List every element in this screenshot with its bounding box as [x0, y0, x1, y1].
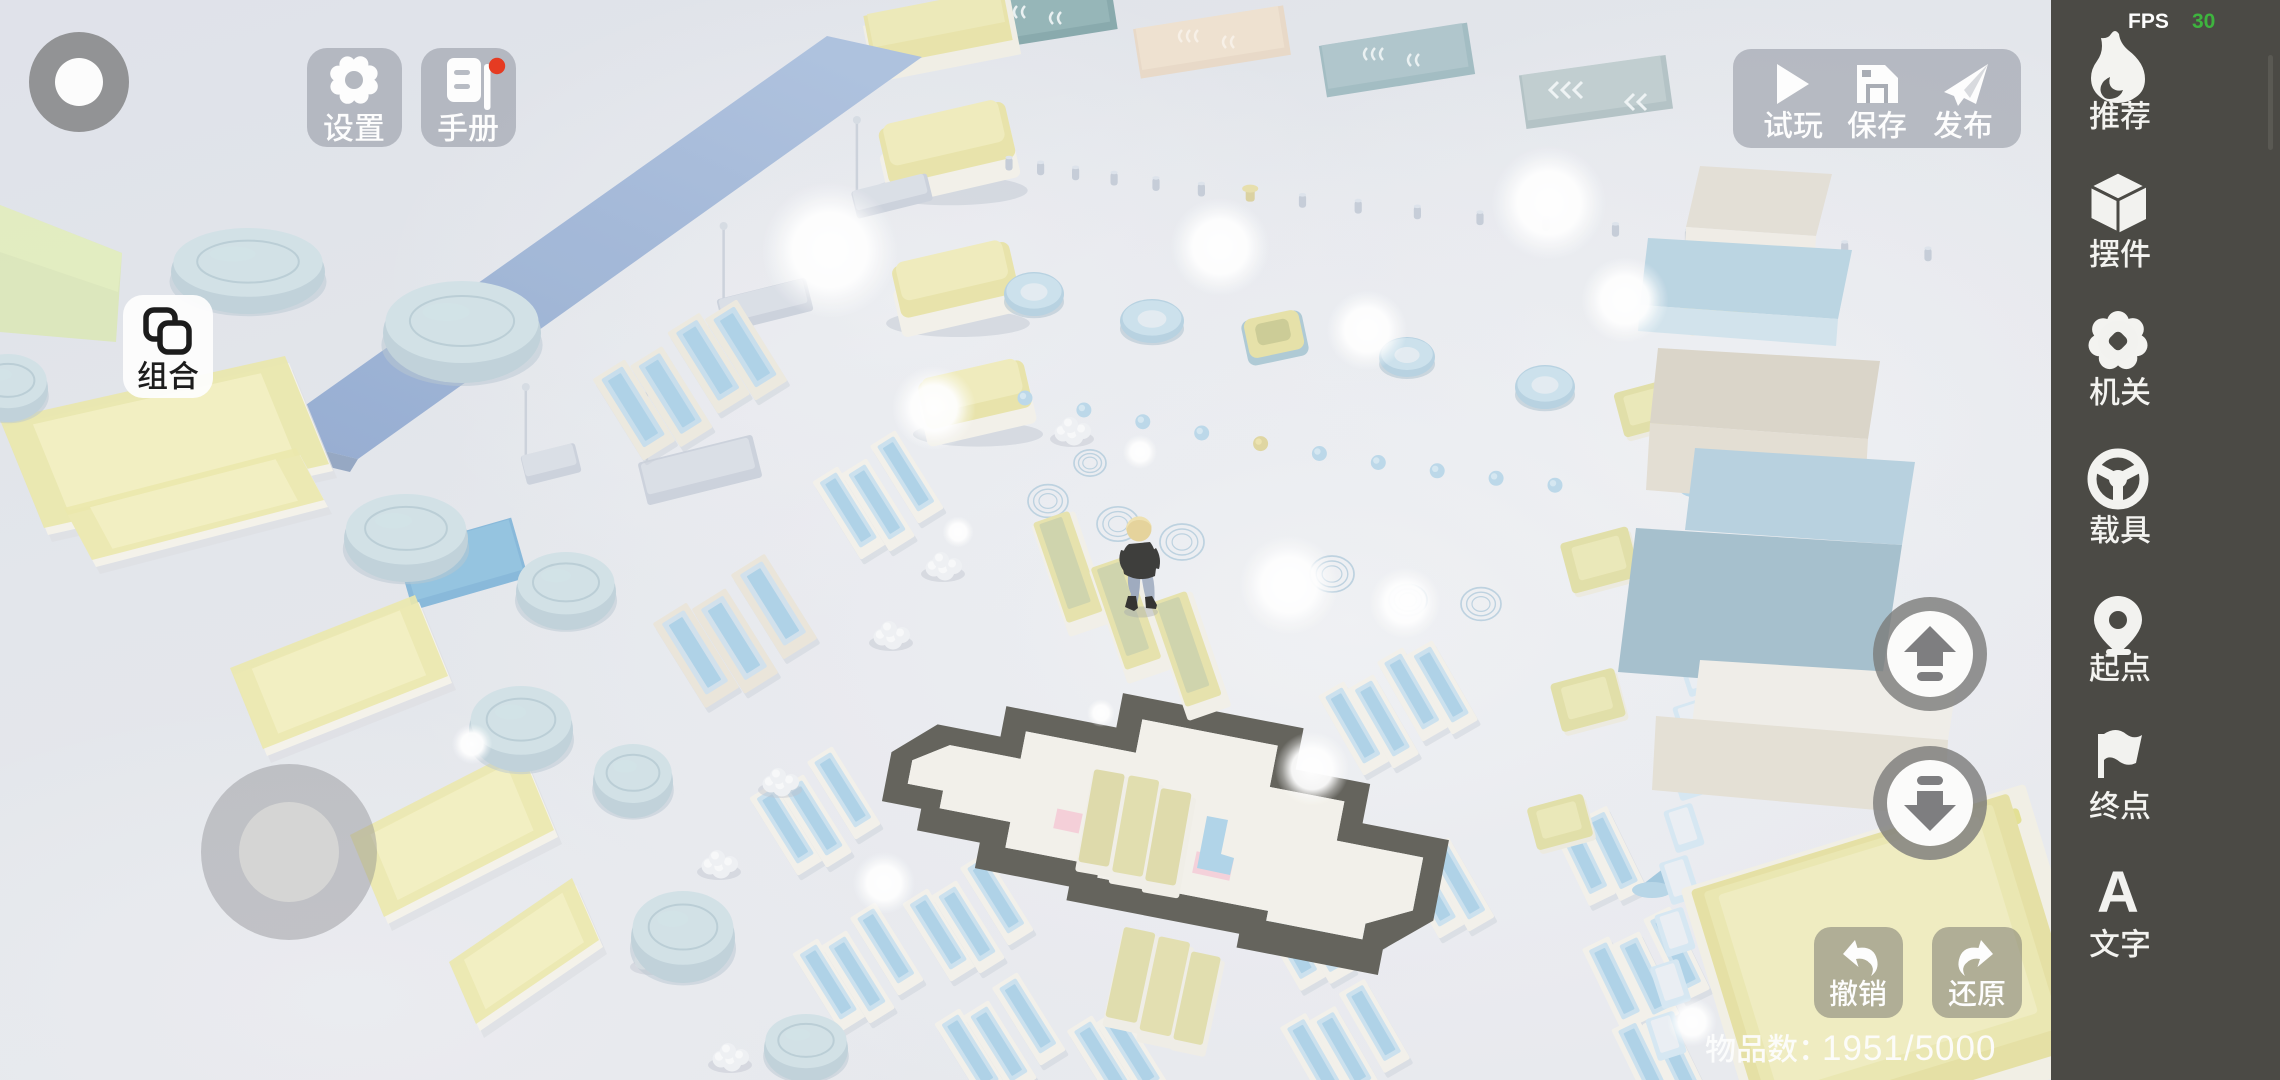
svg-text:FPS: FPS: [2128, 10, 2169, 33]
svg-text:30: 30: [2192, 10, 2215, 33]
svg-text:1951/5000: 1951/5000: [1822, 1029, 1996, 1068]
svg-text:A: A: [2097, 860, 2139, 925]
